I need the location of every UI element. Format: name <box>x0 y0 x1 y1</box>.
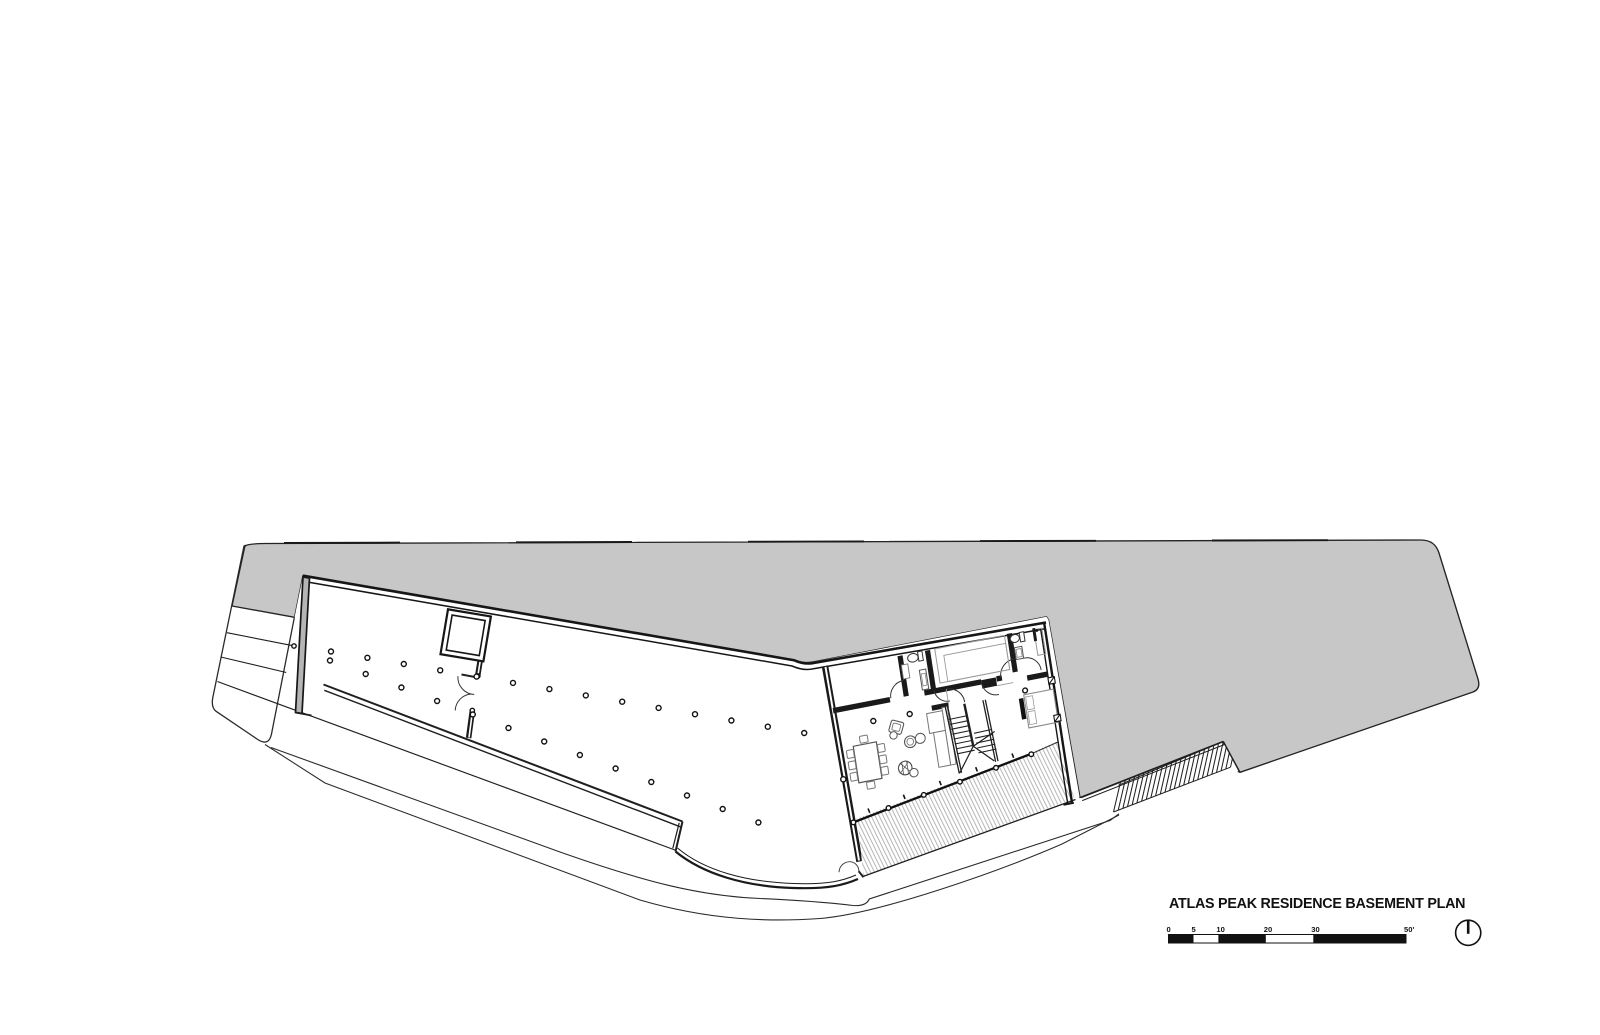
svg-text:10: 10 <box>1216 925 1224 934</box>
svg-text:50': 50' <box>1404 925 1414 934</box>
svg-text:20: 20 <box>1264 925 1272 934</box>
svg-text:ATLAS PEAK RESIDENCE BASEMENT: ATLAS PEAK RESIDENCE BASEMENT PLAN <box>1169 896 1465 912</box>
svg-text:30: 30 <box>1311 925 1319 934</box>
svg-text:0: 0 <box>1167 925 1171 934</box>
